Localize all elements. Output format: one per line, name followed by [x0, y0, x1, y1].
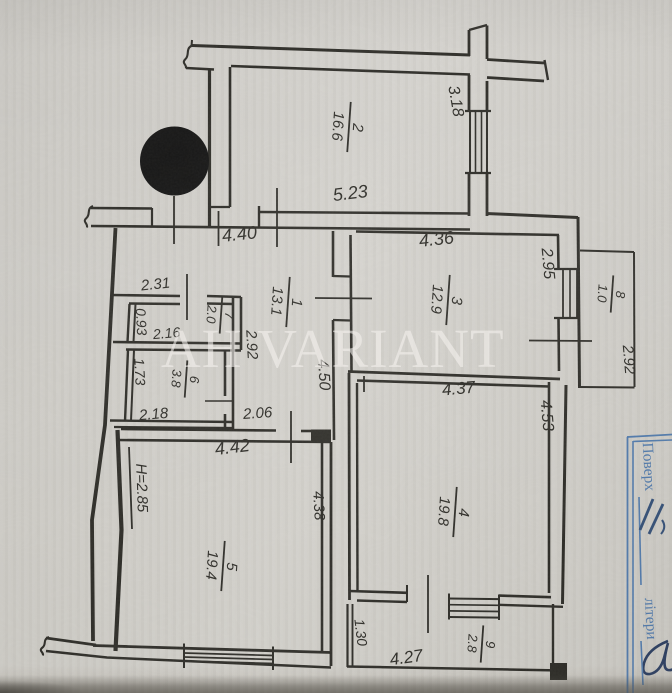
svg-text:4.37: 4.37	[441, 378, 476, 400]
svg-text:2.8: 2.8	[464, 633, 480, 654]
svg-text:2.95: 2.95	[538, 246, 558, 280]
svg-text:12.9: 12.9	[427, 284, 446, 315]
svg-text:2.92: 2.92	[619, 343, 639, 375]
svg-text:4.42: 4.42	[214, 435, 251, 459]
svg-text:1.0: 1.0	[594, 284, 610, 304]
svg-text:3.18: 3.18	[444, 84, 466, 118]
svg-text:Поверх: Поверх	[639, 442, 659, 492]
svg-text:5: 5	[223, 562, 241, 572]
svg-text:13.1: 13.1	[267, 286, 286, 316]
svg-text:4.36: 4.36	[418, 227, 456, 251]
svg-text:8: 8	[613, 290, 629, 299]
svg-text:2.06: 2.06	[242, 404, 274, 423]
svg-text:1.73: 1.73	[131, 358, 148, 386]
svg-text:19.8: 19.8	[434, 496, 453, 527]
svg-text:9: 9	[483, 640, 498, 648]
svg-text:1.30: 1.30	[351, 618, 370, 647]
svg-text:4: 4	[455, 508, 473, 518]
svg-text:5.23: 5.23	[332, 181, 369, 205]
svg-text:літери: літери	[641, 597, 660, 640]
svg-text:16.6: 16.6	[328, 111, 347, 142]
svg-text:2: 2	[349, 122, 367, 133]
svg-text:Н=2.85: Н=2.85	[132, 463, 151, 513]
svg-text:1: 1	[288, 298, 306, 308]
svg-text:4.40: 4.40	[221, 222, 258, 246]
svg-text:0.93: 0.93	[133, 308, 150, 336]
svg-text:4.38: 4.38	[309, 491, 328, 522]
svg-text:2.31: 2.31	[139, 275, 171, 295]
svg-text:3: 3	[448, 296, 466, 306]
svg-text:4.53: 4.53	[537, 399, 557, 432]
svg-text:19.4: 19.4	[202, 550, 221, 580]
svg-text:4.27: 4.27	[389, 646, 425, 669]
